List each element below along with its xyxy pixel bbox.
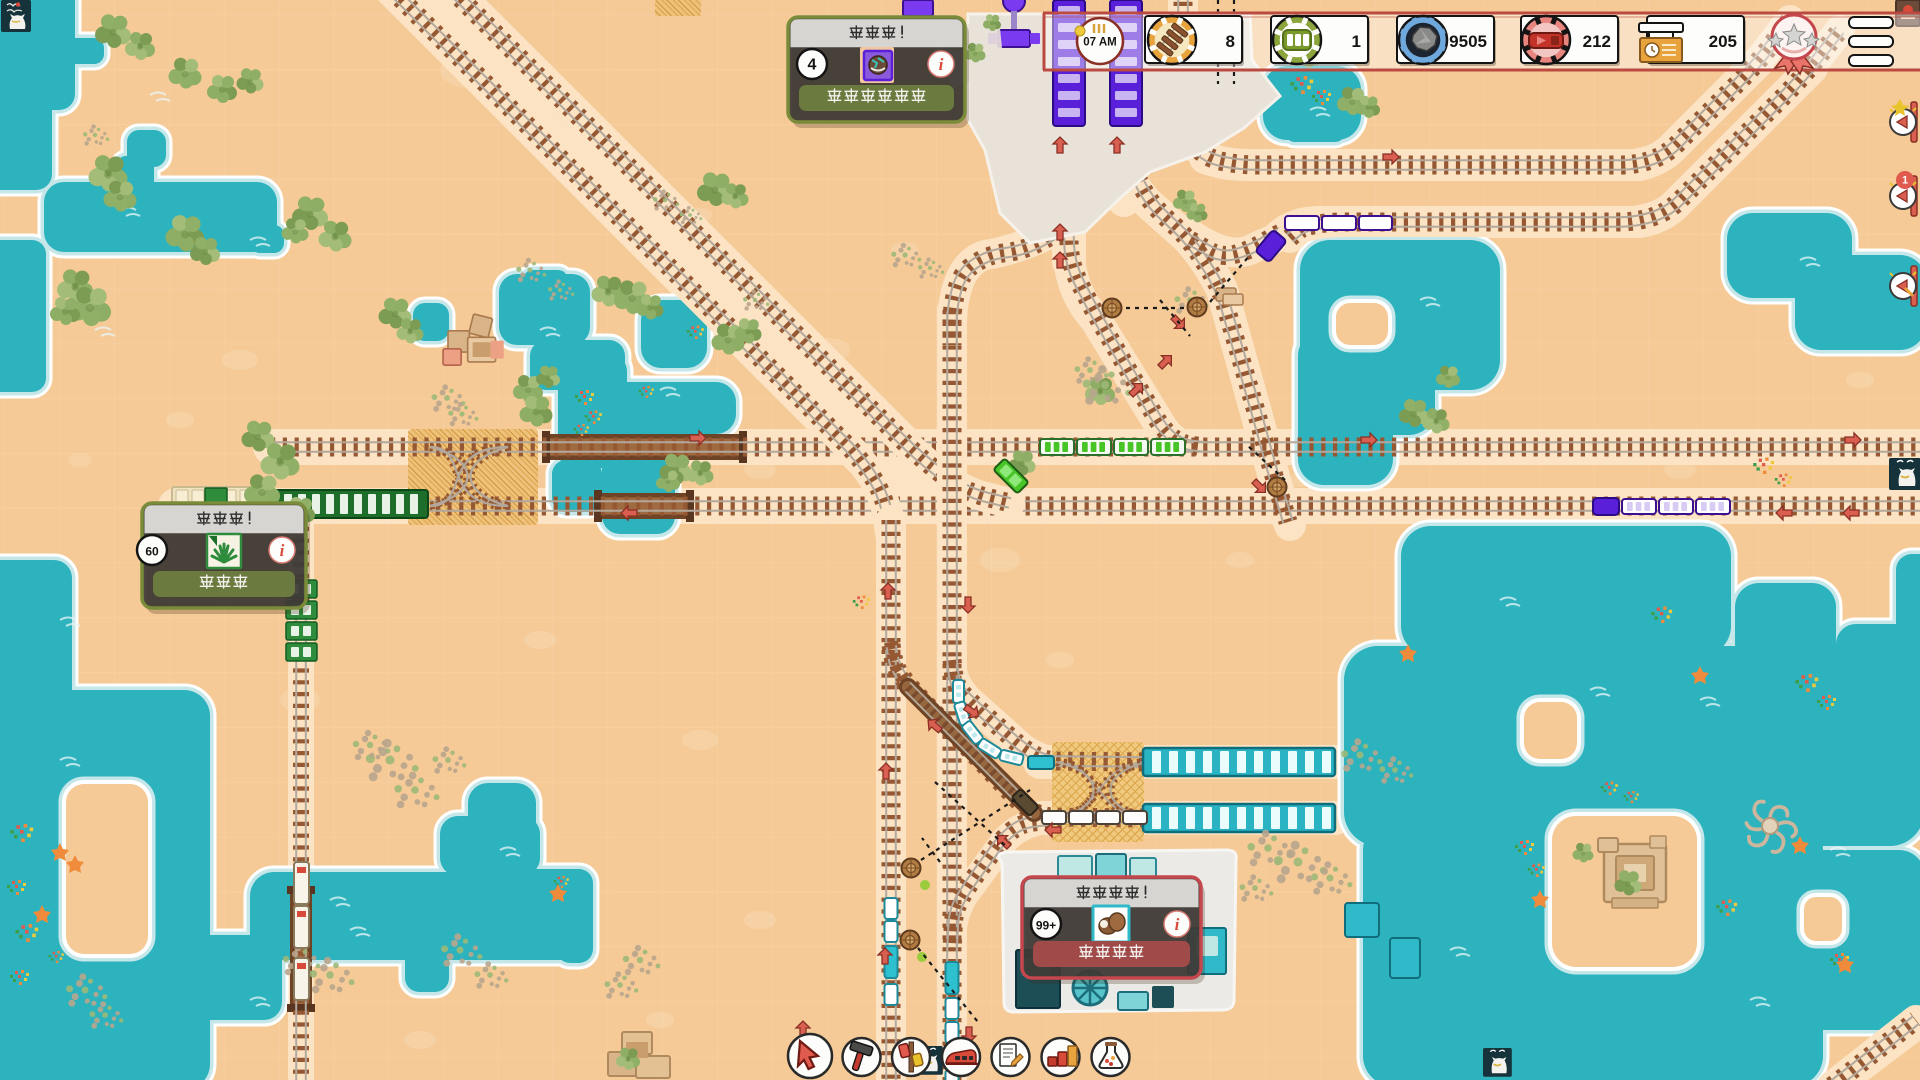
svg-text:9505: 9505: [1449, 32, 1487, 51]
svg-text:4: 4: [808, 57, 817, 74]
svg-text:1: 1: [1352, 32, 1361, 51]
svg-text:205: 205: [1709, 32, 1737, 51]
svg-text:i: i: [939, 55, 944, 74]
svg-text:60: 60: [145, 545, 159, 559]
svg-text:07 AM: 07 AM: [1083, 37, 1116, 49]
svg-text:99+: 99+: [1036, 919, 1056, 933]
svg-text:i: i: [280, 541, 285, 560]
svg-text:212: 212: [1583, 32, 1611, 51]
svg-text:8: 8: [1226, 32, 1235, 51]
svg-text:i: i: [1175, 915, 1180, 934]
svg-text:1: 1: [1902, 175, 1908, 187]
